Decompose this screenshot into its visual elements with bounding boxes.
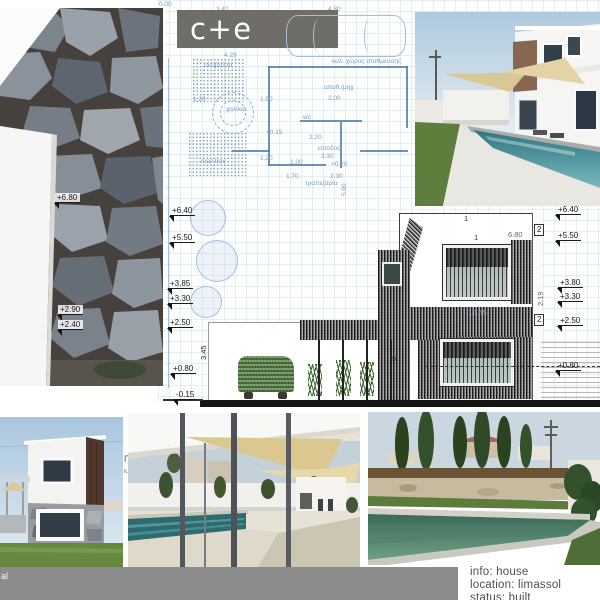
elevation-window <box>382 262 402 286</box>
plan-room-label: αποθ./μηχ <box>324 84 354 91</box>
plan-dimension-label: 0.00 <box>159 1 172 8</box>
canopy-post <box>286 413 291 567</box>
plan-dimension-label: +0.20 <box>331 161 347 168</box>
level-marker: +2.90 <box>58 305 83 315</box>
level-marker: +0.80 <box>171 364 196 374</box>
car-plan-drawing <box>286 15 406 57</box>
car-wheel <box>278 392 287 399</box>
plan-dimension-label: 5.90 <box>341 183 348 196</box>
section-tag: 1 <box>464 215 468 223</box>
plan-room-label: σκύβαλλα <box>204 62 232 69</box>
wood-accent-panel <box>86 437 104 507</box>
plan-tree <box>190 200 226 236</box>
plan-spiral-feature <box>220 100 246 126</box>
car-section-sketch <box>238 356 294 392</box>
footer-text-fragment: al <box>1 571 8 581</box>
plan-dimension-label: 1.20 <box>260 155 273 162</box>
section-tag-box: 2 <box>534 314 544 326</box>
level-marker: +3.80 <box>558 278 583 288</box>
info-line: location: limassol <box>470 579 561 592</box>
section-post <box>318 340 320 400</box>
plan-room-label: είσοδος <box>318 145 340 152</box>
plan-dimension-label: 2.20 <box>309 134 322 141</box>
section-post <box>366 340 368 400</box>
plan-dimension-line <box>168 58 169 388</box>
house-pool-photo-top <box>415 12 600 206</box>
elevation-window <box>440 339 514 386</box>
section-post <box>342 340 344 400</box>
plan-wall <box>268 66 408 68</box>
level-marker: +2.50 <box>558 316 583 326</box>
plan-room-label: καλ. χώρος σταθμευσης <box>332 58 401 65</box>
level-marker: +3.30 <box>168 294 193 304</box>
level-marker: +5.50 <box>170 233 195 243</box>
elevation-window <box>443 245 511 300</box>
plan-dimension-label: 2.30 <box>330 173 343 180</box>
plan-dimension-label: 2.00 <box>328 95 341 102</box>
plan-dimension-label: 3.30 <box>321 153 334 160</box>
level-marker: +0.80 <box>556 361 581 371</box>
pool-terrace-photo <box>128 413 360 567</box>
level-marker: +6.40 <box>170 206 195 216</box>
house-photo-bottom-left <box>0 417 123 567</box>
presentation-board: 0.00 3.42 4.80 4.29 σκύβαλλα καλ. χώρος … <box>0 0 600 600</box>
level-marker: +6.40 <box>556 205 581 215</box>
section-tag: 1 <box>474 234 478 242</box>
canopy-post <box>180 413 185 567</box>
level-marker: +6.80 <box>55 193 80 203</box>
section-ground-line <box>200 400 600 407</box>
plan-gravel-area <box>188 132 246 176</box>
info-line: status: built <box>470 592 561 600</box>
level-marker: +3.85 <box>168 279 193 289</box>
pergola <box>0 477 30 482</box>
section-tag-box: 2 <box>534 224 544 236</box>
plan-dimension-label: 1.90 <box>260 96 273 103</box>
section-dimension: 2.19 <box>537 291 545 306</box>
logo-text: c+e <box>177 11 253 47</box>
level-marker: +5.50 <box>556 231 581 241</box>
plan-room-label: wc <box>303 114 311 121</box>
level-marker: +3.30 <box>558 292 583 302</box>
plan-wall <box>360 150 408 152</box>
level-marker: +2.40 <box>58 320 83 330</box>
white-column <box>0 126 52 386</box>
level-marker: +2.50 <box>168 318 193 328</box>
plan-room-label: τραπεζαρία <box>305 180 338 187</box>
section-dimension: 6.80 <box>508 231 523 239</box>
pool-cypress-photo <box>368 412 600 565</box>
project-info: info: house location: limassol status: b… <box>470 566 561 600</box>
plan-dimension-label: 4.29 <box>224 52 237 59</box>
section-dimension: 3.45 <box>200 345 208 360</box>
section-post <box>390 340 392 400</box>
plan-tree <box>196 240 238 282</box>
pool-house <box>443 90 509 124</box>
section-tag: 5 <box>392 355 396 363</box>
section-dimension: 10.45 <box>468 309 487 317</box>
section-louver-band <box>300 320 458 340</box>
plan-tree <box>190 286 222 318</box>
plan-dimension-label: 1.00 <box>290 159 303 166</box>
plan-wall <box>406 66 408 128</box>
info-line: info: house <box>470 566 561 579</box>
plan-dimension-label: +0.15 <box>266 129 282 136</box>
plan-dimension-label: 1.70 <box>286 173 299 180</box>
plan-room-label: mail box <box>201 158 225 165</box>
level-marker: -0.15 <box>174 390 197 400</box>
power-pole <box>550 420 552 476</box>
plan-room-label: χαλίκια <box>226 106 246 113</box>
canopy-post <box>231 413 237 567</box>
plan-dimension-label: 1.20 <box>193 96 206 103</box>
footer-bar <box>0 567 458 600</box>
lawn <box>0 543 123 567</box>
car-wheel <box>244 392 253 399</box>
elevation-white-column <box>532 213 541 400</box>
